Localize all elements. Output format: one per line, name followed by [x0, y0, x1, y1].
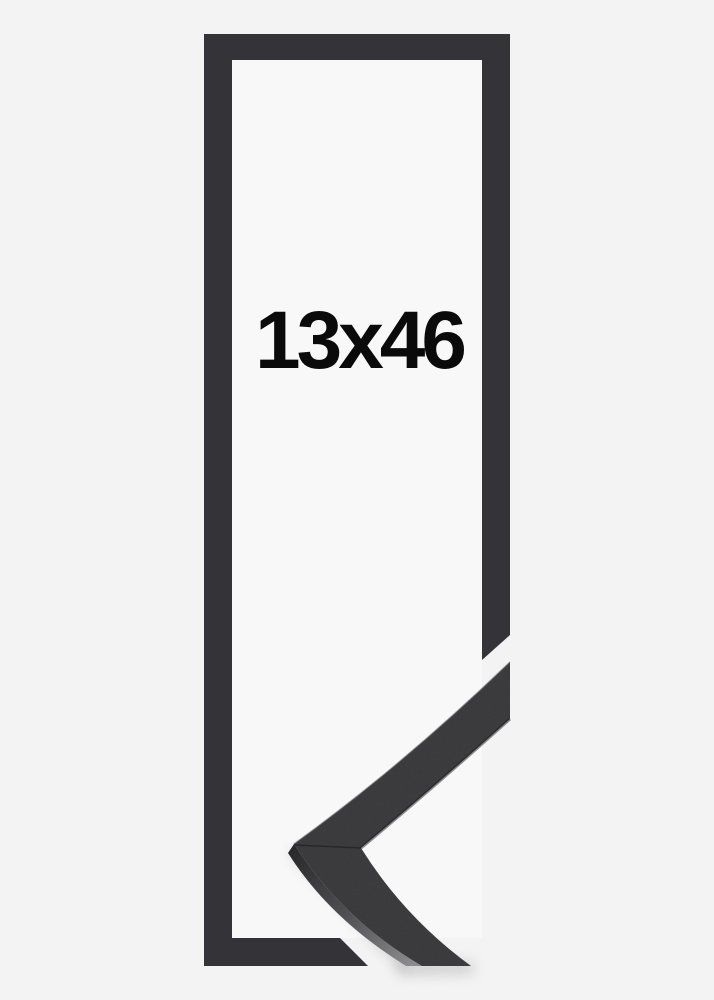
- frame-graphic: [0, 0, 714, 1000]
- product-image: 13x46: [0, 0, 714, 1000]
- size-label: 13x46: [232, 300, 482, 382]
